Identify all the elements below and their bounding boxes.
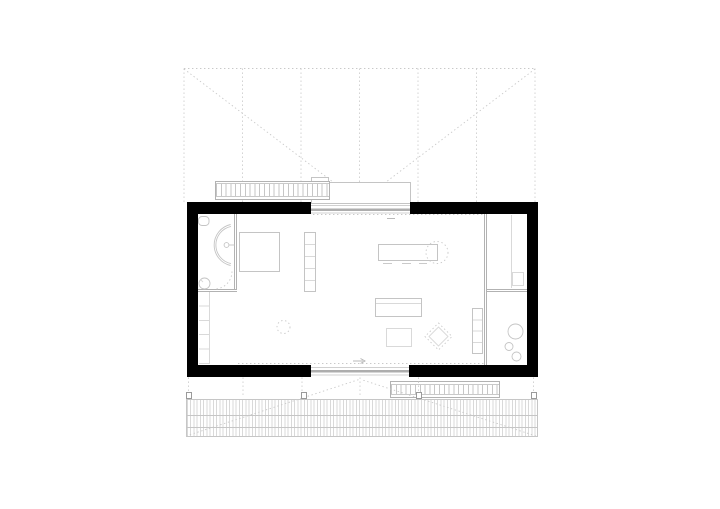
floor-plan-canvas	[0, 0, 720, 509]
deck-post	[531, 392, 538, 399]
kitchen-hob-large	[512, 352, 521, 361]
pouf-dashed-circle	[277, 321, 290, 334]
roof-diagonal-deck-left	[186, 380, 359, 437]
plan-detail-linework	[0, 0, 720, 509]
roof-diagonal-deck-right	[361, 380, 536, 437]
kitchen-hob-small	[505, 343, 513, 351]
deck-post	[301, 392, 308, 399]
kitchen-sink	[508, 324, 523, 339]
deck-post	[186, 392, 193, 399]
table-end-dashed-circle	[426, 242, 448, 264]
toilet	[199, 217, 210, 226]
door-swing-arc	[215, 272, 233, 290]
deck-post	[416, 392, 423, 399]
washbasin-tap	[201, 280, 204, 283]
shower-drain	[224, 243, 229, 248]
